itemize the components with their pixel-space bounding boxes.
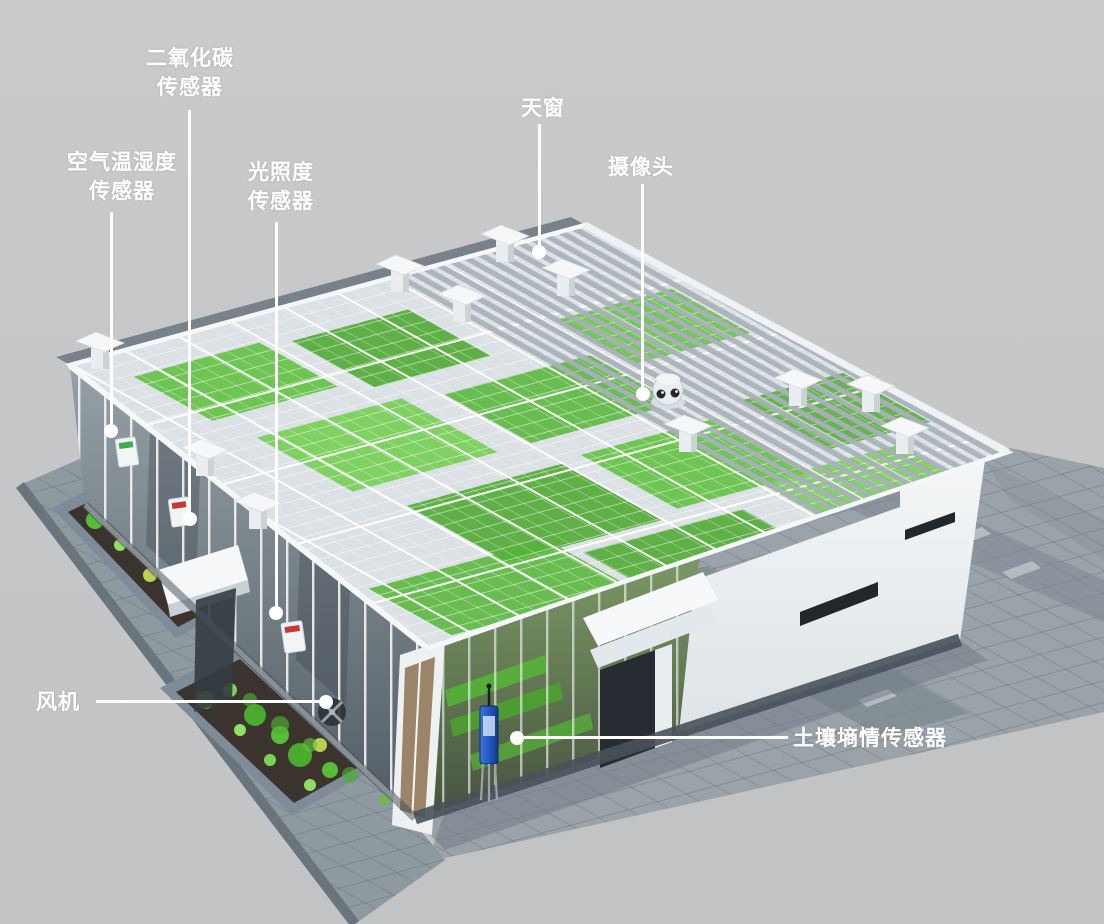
greenhouse-illustration: 二氧化碳 传感器 空气温湿度 传感器 光照度 传感器 天窗 摄像头 风机: [0, 0, 1104, 924]
dome-camera: [651, 374, 685, 410]
greenhouse-3d-scene: [0, 0, 1104, 924]
air-sensor-box: [115, 437, 139, 468]
side-doorway: [194, 588, 236, 712]
exhaust-fan: [318, 698, 346, 726]
light-sensor-box: [281, 621, 306, 654]
co2-sensor-box: [168, 497, 192, 528]
